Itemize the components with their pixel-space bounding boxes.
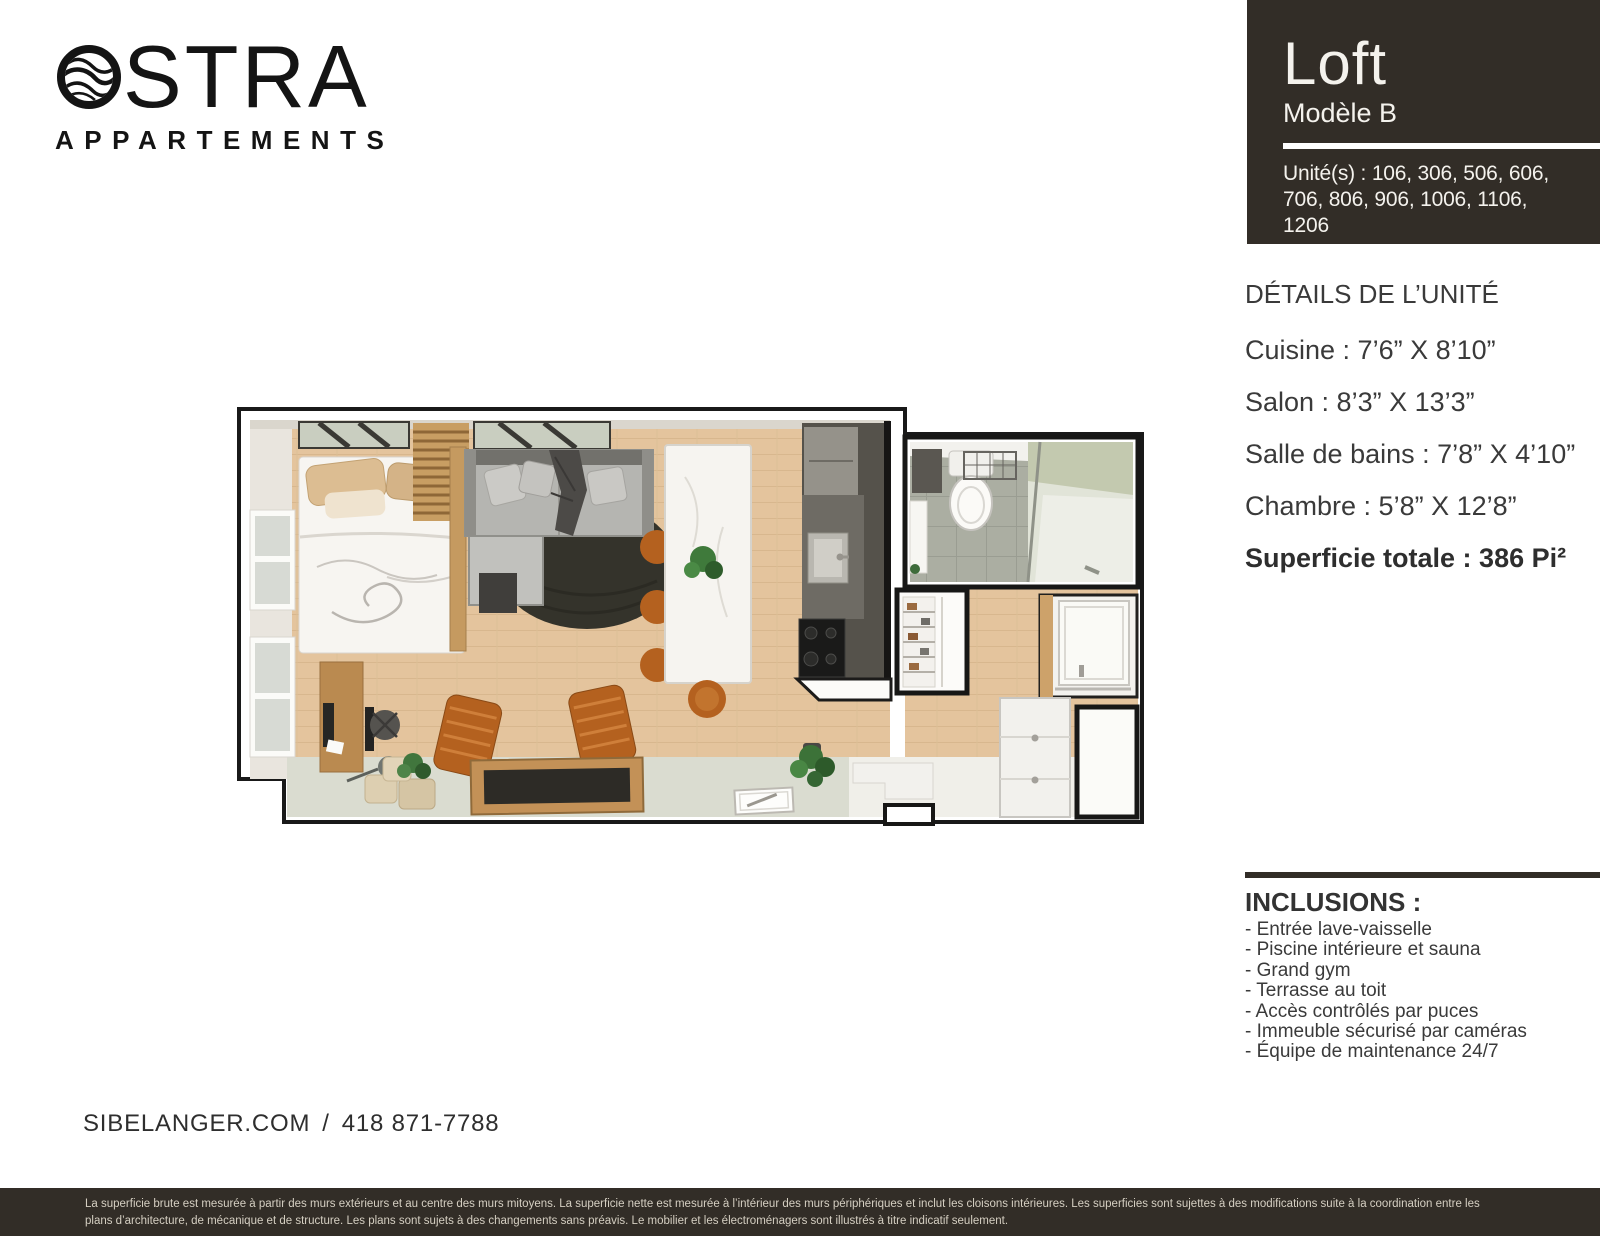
detail-living-room: Salon : 8’3” X 13’3” xyxy=(1245,389,1600,416)
list-item: - Entrée lave-vaisselle xyxy=(1245,920,1600,940)
phone-number[interactable]: 418 871-7788 xyxy=(342,1110,500,1137)
detail-bedroom: Chambre : 5’8” X 12’8” xyxy=(1245,493,1600,520)
contact-line: SIBELANGER.COM/418 871-7788 xyxy=(83,1110,499,1138)
unit-numbers-line: 1206 xyxy=(1283,213,1600,239)
disclaimer-line: La superficie brute est mesurée à partir… xyxy=(85,1196,1600,1213)
list-item: - Grand gym xyxy=(1245,961,1600,981)
inclusions-divider xyxy=(1245,872,1600,878)
unit-card: Loft Modèle B Unité(s) : 106, 306, 506, … xyxy=(1247,0,1600,244)
list-item: - Piscine intérieure et sauna xyxy=(1245,940,1600,960)
unit-numbers-line: 706, 806, 906, 1006, 1106, xyxy=(1283,187,1600,213)
storage-closet xyxy=(897,590,967,693)
unit-numbers: Unité(s) : 106, 306, 506, 606, 706, 806,… xyxy=(1283,161,1600,239)
unit-details: DÉTAILS DE L’UNITÉ Cuisine : 7’6” X 8’10… xyxy=(1245,281,1600,572)
list-item: - Accès contrôlés par puces xyxy=(1245,1002,1600,1022)
floor-plan-svg xyxy=(237,407,1145,827)
floor-plan-rendering xyxy=(237,407,1145,827)
ostra-o-wave-icon xyxy=(55,43,123,111)
list-item: - Immeuble sécurisé par caméras xyxy=(1245,1022,1600,1042)
disclaimer-footer: La superficie brute est mesurée à partir… xyxy=(0,1188,1600,1236)
unit-numbers-line: Unité(s) : 106, 306, 506, 606, xyxy=(1283,161,1600,187)
detail-kitchen: Cuisine : 7’6” X 8’10” xyxy=(1245,337,1600,364)
list-item: - Terrasse au toit xyxy=(1245,981,1600,1001)
website-link[interactable]: SIBELANGER.COM xyxy=(83,1110,310,1137)
kitchen-cabinets xyxy=(797,421,891,700)
unit-card-divider xyxy=(1283,143,1600,149)
inclusions-list: - Entrée lave-vaisselle - Piscine intéri… xyxy=(1245,920,1600,1063)
coffee-table xyxy=(471,758,644,815)
contact-separator: / xyxy=(322,1110,329,1137)
brand-name-letters: STRA xyxy=(123,43,370,111)
brand-subtitle: APPARTEMENTS xyxy=(55,125,394,156)
unit-model: Modèle B xyxy=(1283,98,1600,129)
list-item: - Équipe de maintenance 24/7 xyxy=(1245,1042,1600,1062)
disclaimer-line: plans d’architecture, de mécanique et de… xyxy=(85,1213,1600,1230)
inclusions-section: INCLUSIONS : - Entrée lave-vaisselle - P… xyxy=(1245,872,1600,1063)
inclusions-title: INCLUSIONS : xyxy=(1245,888,1600,916)
bathroom xyxy=(905,437,1138,587)
detail-total-area: Superficie totale : 386 Pi² xyxy=(1245,545,1600,572)
detail-bathroom: Salle de bains : 7’8” X 4’10” xyxy=(1245,441,1600,468)
ostra-logo: STRA APPARTEMENTS xyxy=(55,42,394,156)
brand-wordmark: STRA xyxy=(55,42,394,112)
brochure-page: STRA APPARTEMENTS Loft Modèle B Unité(s)… xyxy=(0,0,1600,1236)
details-title: DÉTAILS DE L’UNITÉ xyxy=(1245,281,1600,308)
unit-title: Loft xyxy=(1283,34,1600,94)
